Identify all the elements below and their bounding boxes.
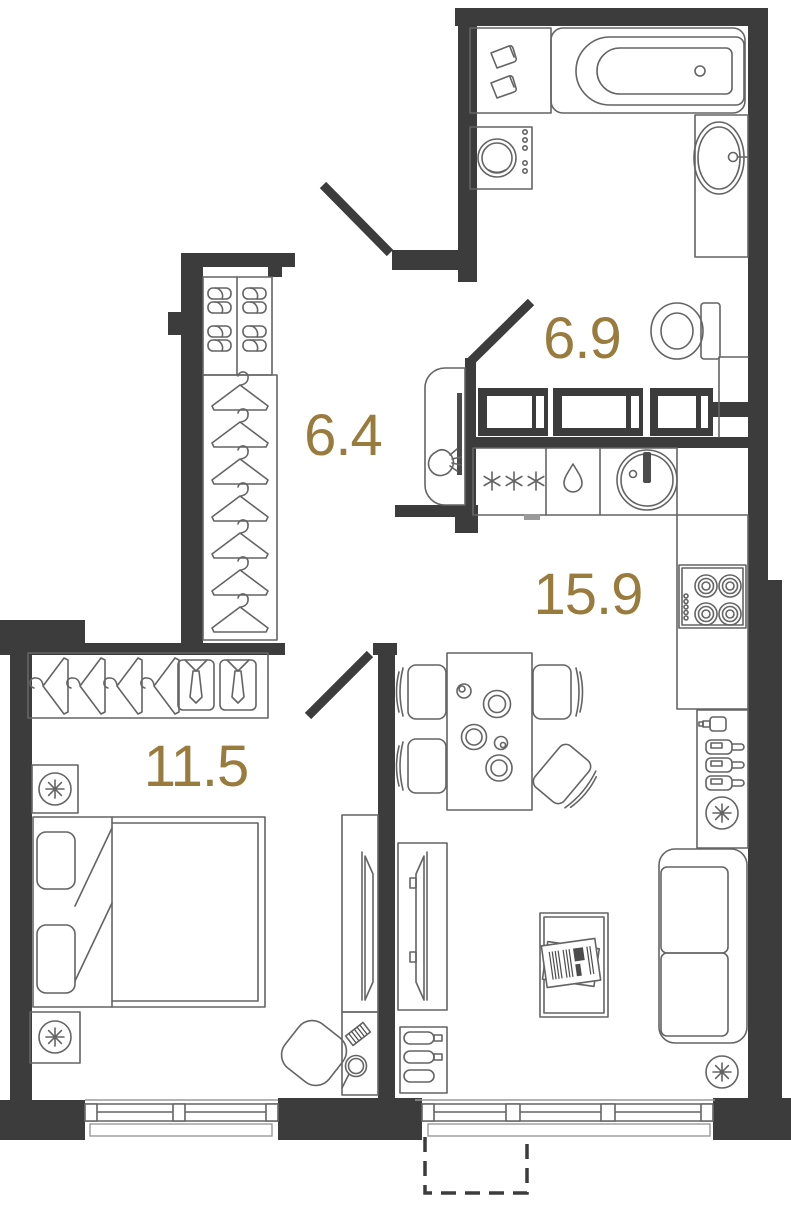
tv-icon xyxy=(410,852,427,1000)
bedroom-area-label: 11.5 xyxy=(144,734,249,799)
coffee-table xyxy=(540,913,608,1017)
living-room-window xyxy=(415,1100,715,1136)
dining-chair xyxy=(397,739,447,793)
shoe-cabinet xyxy=(400,1027,447,1093)
bathroom xyxy=(470,28,748,437)
shaker-icon xyxy=(699,717,726,731)
vent-duct-boxes xyxy=(478,388,713,436)
wine-bottles-icon xyxy=(706,740,744,790)
newspapers-icon xyxy=(541,938,600,987)
bedroom-door xyxy=(308,654,370,716)
pillow-icon xyxy=(37,832,75,889)
radiator-icon xyxy=(706,1056,738,1088)
hallway-area-label: 6.4 xyxy=(304,403,382,468)
kitchen-sink-icon xyxy=(617,450,677,510)
bathroom-door xyxy=(471,302,531,361)
fridge-icon xyxy=(484,472,544,490)
radiator-icon xyxy=(706,797,738,829)
french-balcony-outline xyxy=(425,1137,527,1193)
dining-table xyxy=(447,653,532,810)
hall-wardrobe-icon xyxy=(203,372,277,640)
walls xyxy=(0,8,791,1140)
bathtub-icon xyxy=(551,28,745,113)
bedroom xyxy=(28,653,378,1095)
nightstand-lamp xyxy=(30,1012,80,1063)
nightstand-lamp xyxy=(32,765,78,813)
kitchen-living-area-label: 15.9 xyxy=(534,562,643,627)
sofa xyxy=(659,849,747,1043)
washing-machine-icon xyxy=(470,127,532,189)
pillow-icon xyxy=(37,925,75,993)
bathroom-sink-icon xyxy=(694,115,748,257)
floor-plan: 6.9 6.4 15.9 11.5 xyxy=(0,0,791,1217)
tv-icon xyxy=(362,852,373,1000)
blanket-fold-icon xyxy=(75,828,112,981)
sconce-icon xyxy=(429,449,461,475)
dishwasher-icon xyxy=(564,464,582,492)
double-bed xyxy=(33,817,265,1007)
hand-mirror-icon xyxy=(342,1056,367,1089)
dressing-table xyxy=(342,1012,378,1095)
kitchen-living-room xyxy=(397,448,749,1093)
bar-cabinet xyxy=(697,710,748,848)
shirt-with-tie-icon xyxy=(220,660,256,710)
shelf-with-bottles-icon xyxy=(470,28,551,113)
entrance-door xyxy=(323,185,390,253)
dining-chair xyxy=(530,741,603,814)
dining-chair xyxy=(533,665,583,719)
floor-plan-svg: 6.9 6.4 15.9 11.5 xyxy=(0,0,791,1217)
bathroom-area-label: 6.9 xyxy=(543,306,621,371)
burner-icon xyxy=(695,575,741,625)
bedroom-wardrobe xyxy=(28,653,268,718)
cooktop-icon xyxy=(679,565,746,628)
bedroom-tv-console xyxy=(342,815,378,1012)
tv-console xyxy=(398,843,447,1010)
shirt-with-tie-icon xyxy=(178,660,214,710)
comb-icon xyxy=(346,1022,371,1045)
dining-chair xyxy=(397,665,447,719)
hall-mirror xyxy=(425,368,465,505)
shoe-rack-icon xyxy=(203,277,272,375)
bedroom-window xyxy=(85,1100,278,1136)
